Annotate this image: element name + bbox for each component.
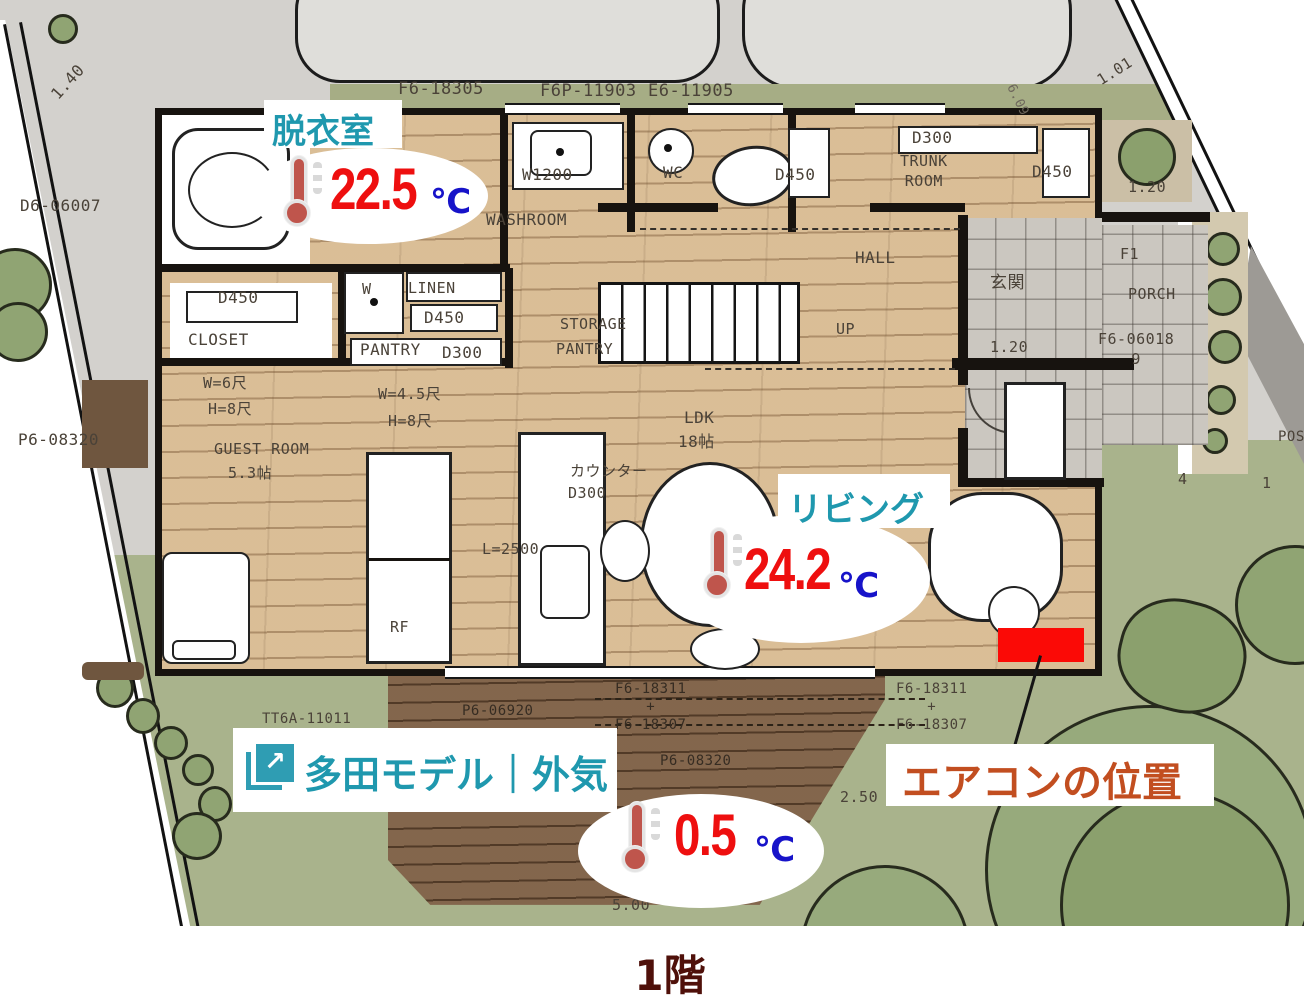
living-temp-value: 24.2 xyxy=(744,536,830,603)
bush xyxy=(154,726,188,760)
plan-label-code: F6-06018 9 xyxy=(1098,330,1174,369)
pillow xyxy=(172,640,236,660)
plan-label-code: TT6A-11011 xyxy=(262,710,351,728)
window xyxy=(855,103,945,115)
thermometer-icon xyxy=(620,802,660,876)
shrub xyxy=(1206,232,1240,266)
external-link-arrow: ↗ xyxy=(264,747,286,777)
dimension-label: 1.20 xyxy=(990,338,1028,358)
staircase xyxy=(598,282,800,364)
room-label: D450 xyxy=(424,308,465,329)
shrub xyxy=(1204,278,1242,316)
wall xyxy=(505,268,513,368)
room-label: TRUNK ROOM xyxy=(900,152,948,191)
floor-title: 1階 xyxy=(600,942,740,1001)
room-label: PANTRY xyxy=(556,340,613,360)
room-label: D450 xyxy=(1032,162,1073,183)
living-temp-unit: ℃ xyxy=(838,566,879,606)
wall xyxy=(958,428,968,484)
room-label: D300 xyxy=(568,484,606,504)
room-label: HALL xyxy=(855,248,896,269)
bush xyxy=(182,754,214,786)
room-label: 18帖 xyxy=(678,432,715,453)
bush xyxy=(172,812,222,860)
room-label: カウンター xyxy=(570,462,648,482)
wall xyxy=(627,112,635,232)
outdoor-temp-unit: ℃ xyxy=(754,830,795,870)
plan-label-code: F6-18305 xyxy=(398,78,484,100)
living-room-label: リビング xyxy=(788,482,924,531)
sliding-door xyxy=(445,666,875,679)
room-label: RF xyxy=(390,618,409,638)
car-outline xyxy=(742,0,1072,90)
dressing-room-label: 脱衣室 xyxy=(272,104,374,153)
wall xyxy=(870,203,965,212)
room-label: STORAGE xyxy=(560,315,627,335)
room-label: CLOSET xyxy=(188,330,249,351)
room-label: WC xyxy=(663,163,683,184)
shelf-d450 xyxy=(788,128,830,198)
thermometer-icon xyxy=(282,156,322,230)
wall xyxy=(598,203,718,212)
closet-dash-line xyxy=(640,228,960,230)
room-label: WASHROOM xyxy=(486,210,567,231)
room-label: LINEN xyxy=(408,279,456,299)
plan-label-code: E6-11905 xyxy=(648,80,734,102)
window xyxy=(688,103,783,115)
bush xyxy=(126,698,160,734)
room-label: PORCH xyxy=(1128,285,1176,305)
dimension-label: 2.50 xyxy=(840,788,878,808)
room-label: D300 xyxy=(912,128,953,149)
hall-dash-line xyxy=(705,368,955,370)
room-label: F1 xyxy=(1120,245,1139,265)
dimension-label: 1.20 xyxy=(1128,178,1166,198)
plan-label-code: F6P-11903 xyxy=(540,80,637,102)
tile-number: 1 xyxy=(1262,474,1272,494)
plan-label-code: D6-06007 xyxy=(20,196,101,217)
room-label: GUEST ROOM xyxy=(214,440,309,460)
room-label: LDK xyxy=(684,408,714,429)
plan-label-code: F6-18311 + F6-18307 xyxy=(615,680,686,735)
outdoor-label[interactable]: 多田モデル｜外気 xyxy=(304,744,608,799)
room-label: W1200 xyxy=(522,165,573,186)
car-outline xyxy=(295,0,720,83)
kitchen-sink xyxy=(540,545,590,619)
plan-label-code: P6-08320 xyxy=(660,752,731,770)
dimension-label: H=8尺 xyxy=(208,400,252,420)
wall xyxy=(500,112,508,268)
dimension-label: W=4.5尺 xyxy=(378,385,441,405)
garden-step xyxy=(82,662,144,680)
chair xyxy=(600,520,650,582)
plan-label-code: P6-06920 xyxy=(462,702,533,720)
shrub xyxy=(1208,330,1242,364)
counter-divider xyxy=(368,558,450,561)
dressing-temp-unit: ℃ xyxy=(430,182,471,222)
shoe-cabinet xyxy=(1004,382,1066,480)
room-label: D450 xyxy=(218,288,259,309)
outdoor-unit xyxy=(82,380,148,468)
room-label: PANTRY xyxy=(360,340,421,361)
wall xyxy=(958,215,968,385)
plan-label-code: POST xyxy=(1278,428,1304,446)
wall xyxy=(1102,212,1210,222)
dimension-label: W=6尺 xyxy=(203,374,247,394)
plan-label-code: F6-18311 + F6-18307 xyxy=(896,680,967,735)
tile-number: 4 xyxy=(1178,470,1188,490)
shrub xyxy=(48,14,78,44)
ac-label-text: エアコンの位置 xyxy=(902,750,1182,808)
dimension-label: L=2500 xyxy=(482,540,539,560)
plan-label-code: P6-08320 xyxy=(18,430,99,451)
room-label: D300 xyxy=(442,343,483,364)
window xyxy=(505,103,620,115)
wall xyxy=(155,264,510,272)
room-label: D450 xyxy=(775,165,816,186)
thermometer-icon xyxy=(702,528,742,602)
sink-drain xyxy=(664,144,672,152)
dressing-temp-value: 22.5 xyxy=(330,156,416,223)
room-label: UP xyxy=(836,320,855,340)
sink-drain xyxy=(556,148,564,156)
room-label: 5.3帖 xyxy=(228,464,272,484)
dimension-label: H=8尺 xyxy=(388,412,432,432)
room-label: 玄関 xyxy=(990,272,1025,294)
floor-plan-page: F6-18305 F6P-11903 E6-11905 1.40 D6-0600… xyxy=(0,0,1304,1001)
room-label: W xyxy=(362,280,372,300)
outdoor-temp-value: 0.5 xyxy=(674,802,735,869)
external-link-icon[interactable]: ↗ xyxy=(246,742,298,794)
shrub xyxy=(1206,385,1236,415)
